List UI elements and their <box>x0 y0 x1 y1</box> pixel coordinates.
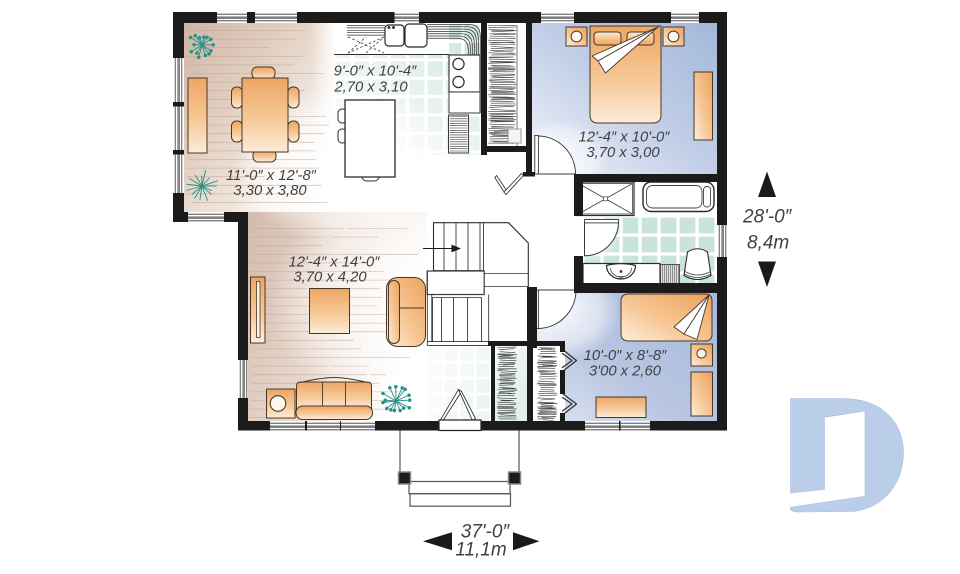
svg-text:12'-4″ x 10'-0″: 12'-4″ x 10'-0″ <box>579 130 671 146</box>
svg-text:28'-0″: 28'-0″ <box>742 207 793 228</box>
svg-text:3,70 x 3,00: 3,70 x 3,00 <box>586 145 660 161</box>
svg-text:11,1m: 11,1m <box>455 540 506 561</box>
svg-text:3'00 x 2,60: 3'00 x 2,60 <box>589 364 662 380</box>
svg-text:8,4m: 8,4m <box>747 233 789 254</box>
svg-text:12'-4″ x 14'-0″: 12'-4″ x 14'-0″ <box>289 255 381 271</box>
svg-text:2,70 x 3,10: 2,70 x 3,10 <box>333 80 408 96</box>
svg-text:3,30 x 3,80: 3,30 x 3,80 <box>233 183 307 199</box>
svg-text:3,70 x 4,20: 3,70 x 4,20 <box>293 270 367 286</box>
svg-text:9'-0″ x 10'-4″: 9'-0″ x 10'-4″ <box>334 64 418 80</box>
svg-text:10'-0″ x 8'-8″: 10'-0″ x 8'-8″ <box>584 348 668 364</box>
svg-text:11'-0″ x 12'-8″: 11'-0″ x 12'-8″ <box>226 168 317 184</box>
